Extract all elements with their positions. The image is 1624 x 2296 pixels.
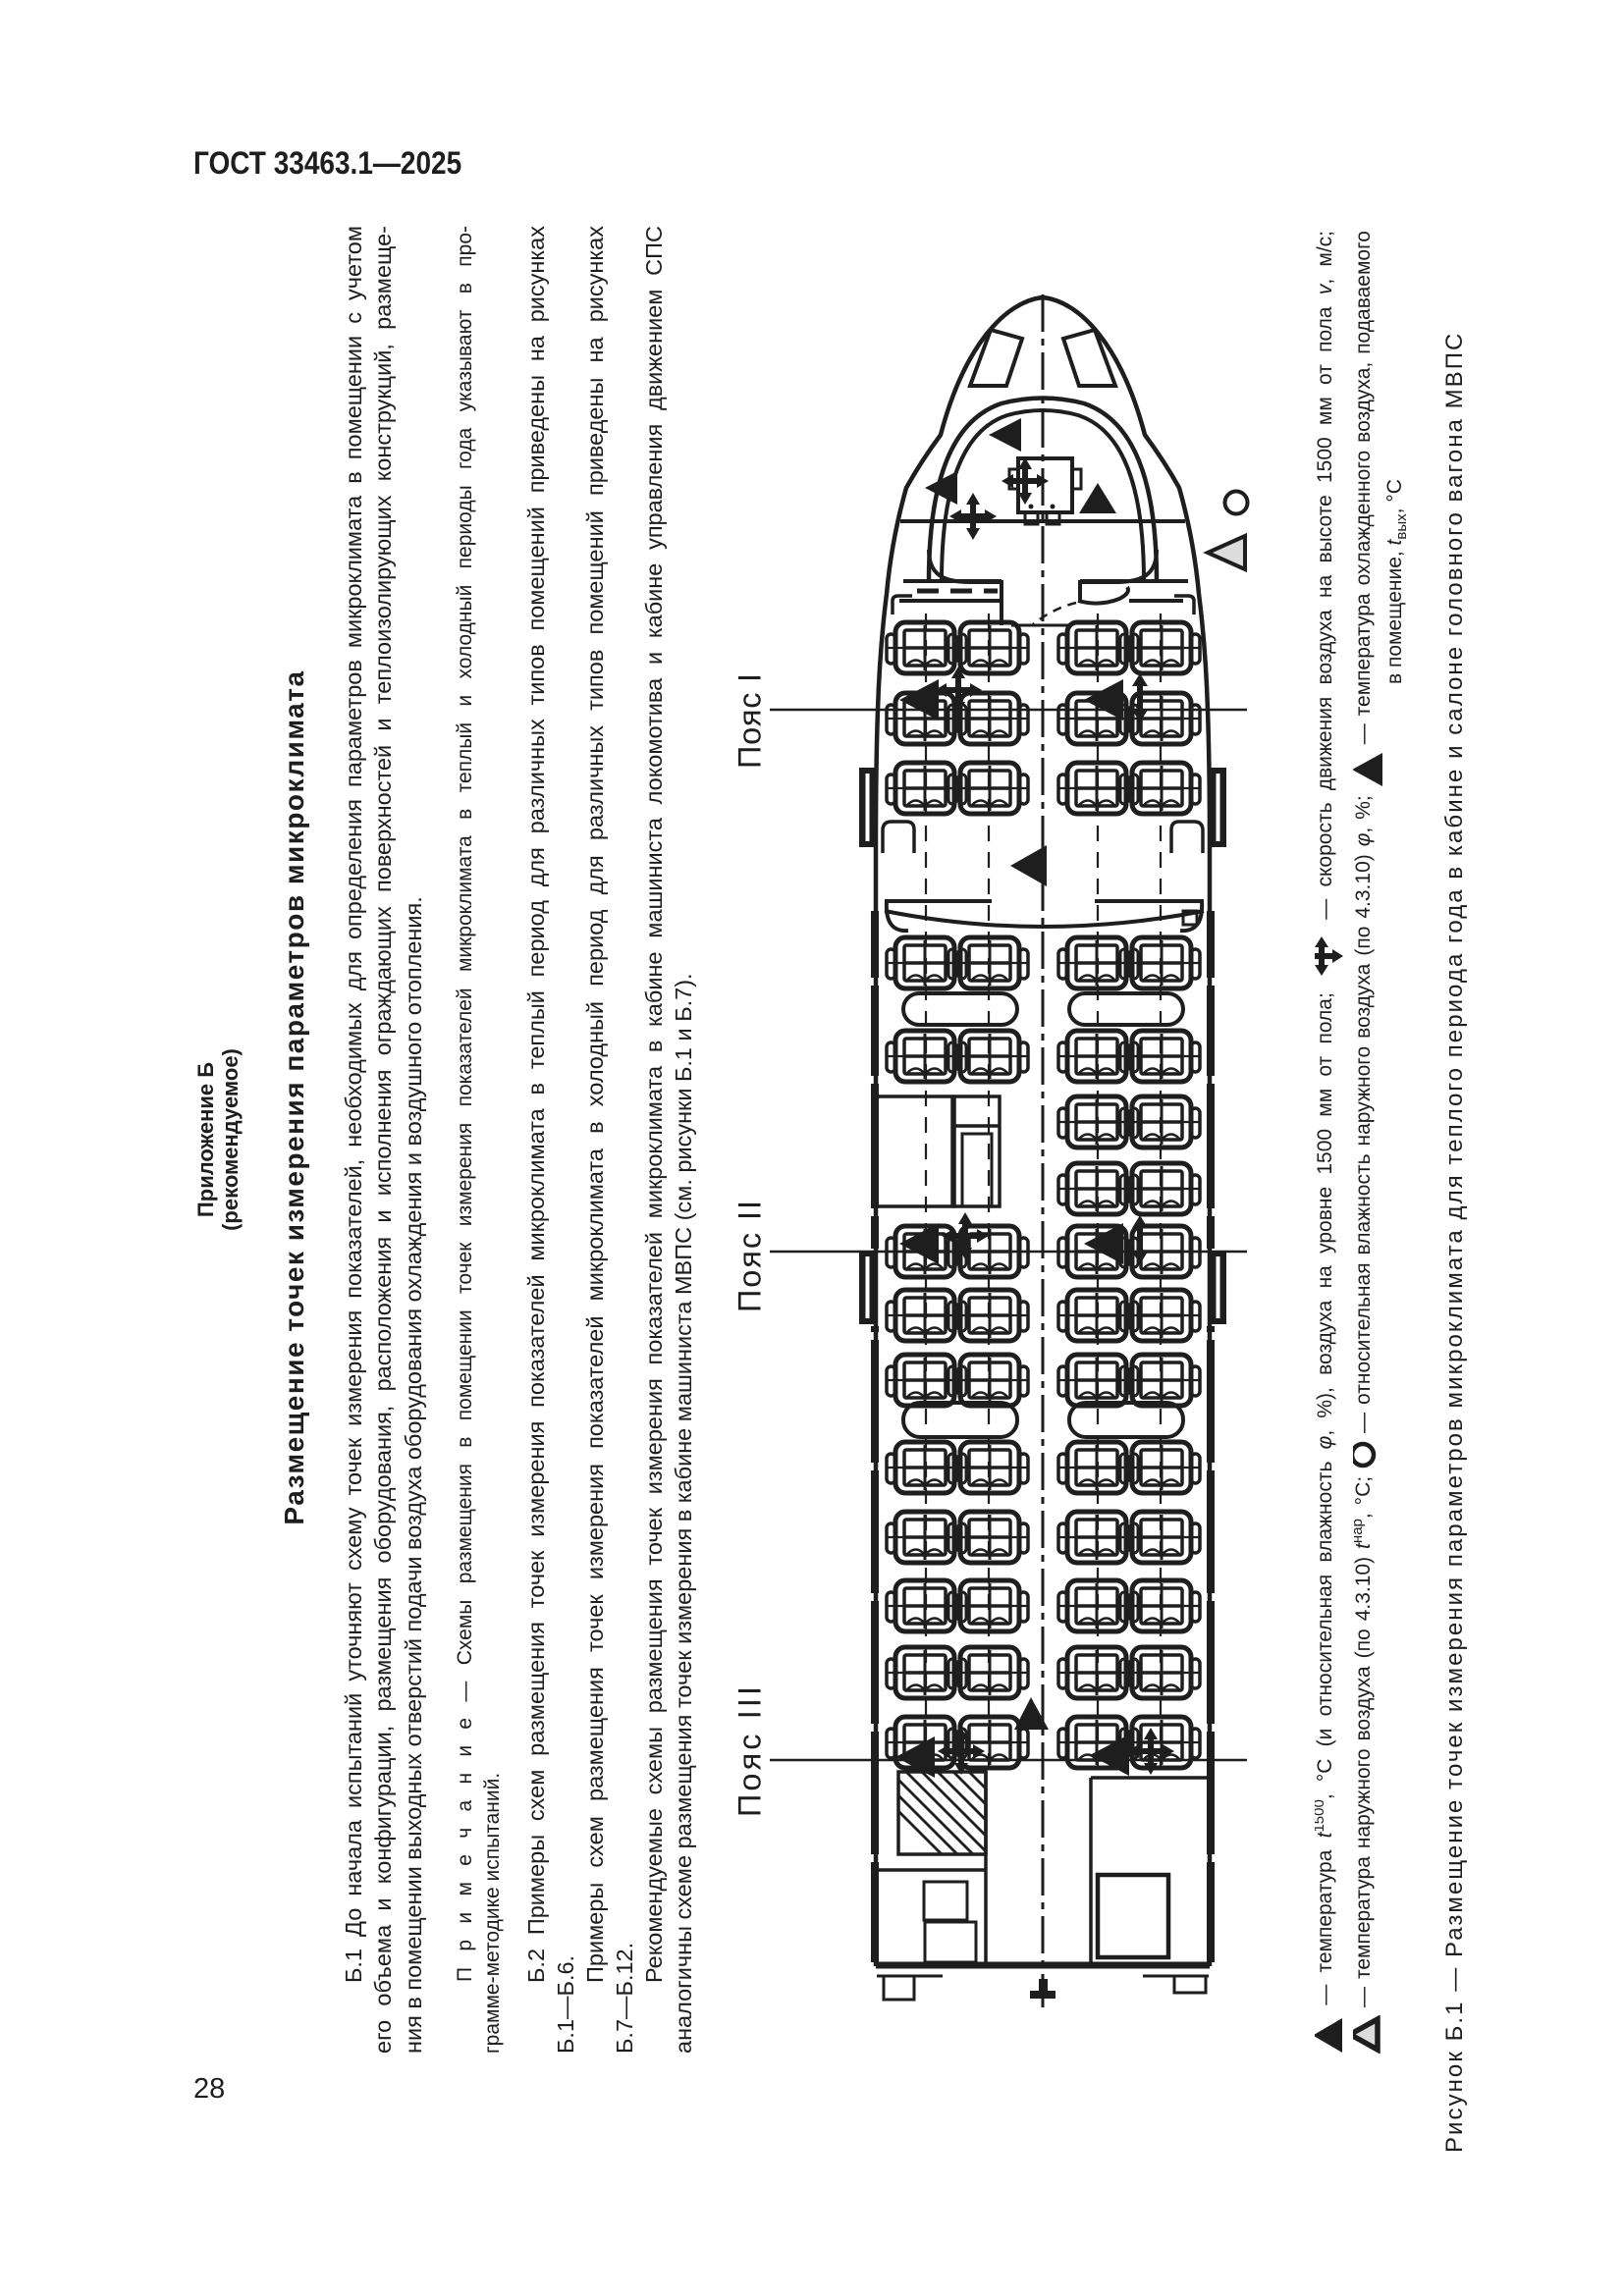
svg-text:Пояс III: Пояс III (732, 1686, 768, 1817)
svg-text:Пояс II: Пояс II (732, 1201, 768, 1312)
svg-text:Пояс I: Пояс I (732, 673, 768, 769)
